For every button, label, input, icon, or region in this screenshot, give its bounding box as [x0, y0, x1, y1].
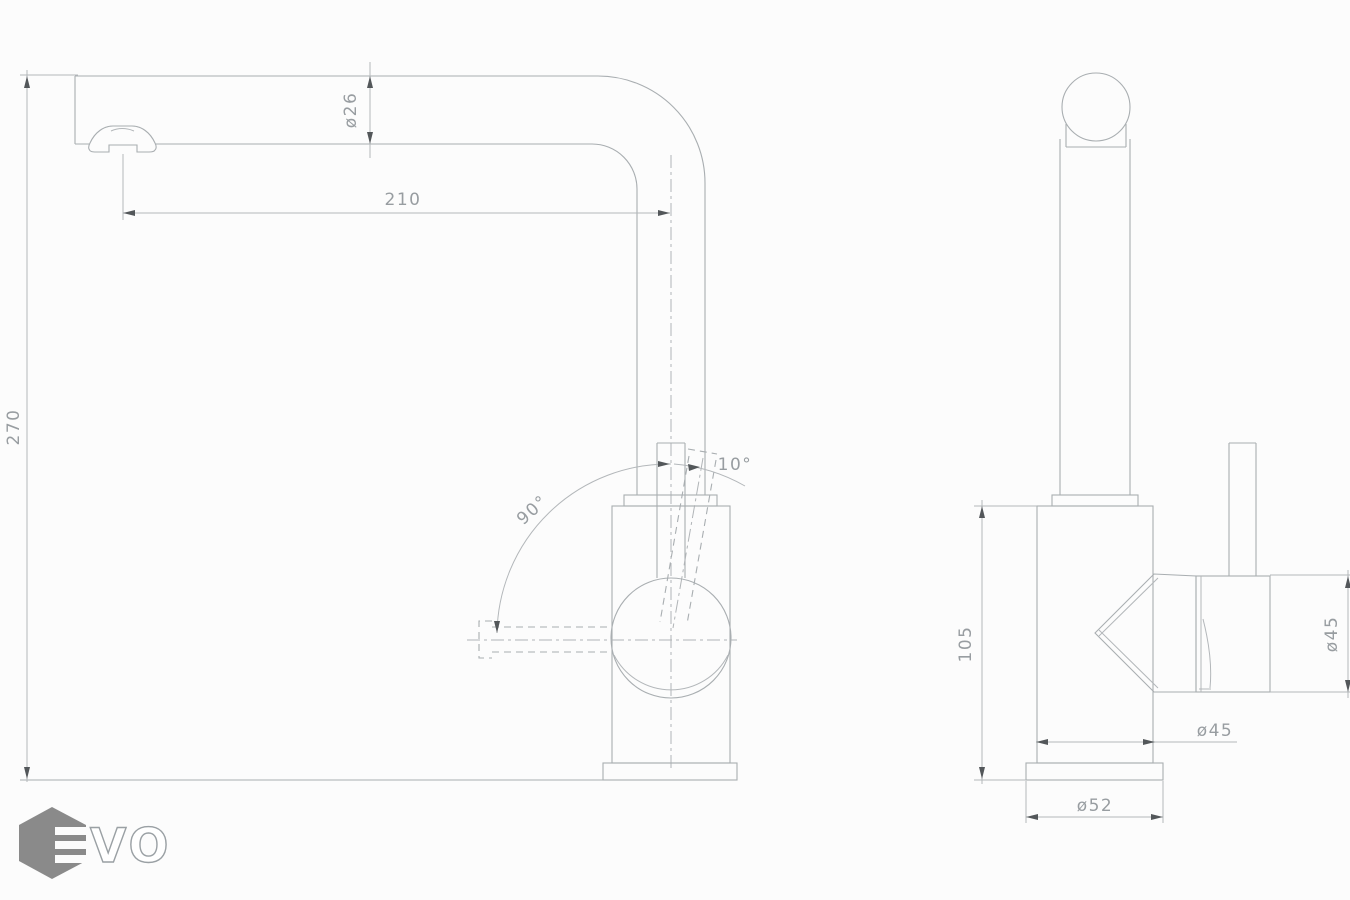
tilted-lever-right-edge	[687, 460, 716, 624]
e-bar	[55, 855, 89, 863]
faucet-technical-drawing: 270 ø26 210 90° 10°	[0, 0, 1350, 900]
arrowhead	[658, 461, 670, 467]
arrowhead	[979, 767, 985, 779]
arrowhead	[123, 210, 135, 216]
dim-spout-reach: 210	[123, 154, 670, 220]
arrowhead	[24, 76, 30, 88]
handle-cone-wedge	[1095, 574, 1196, 692]
dim-label-swivel-angle: 90°	[513, 491, 552, 529]
dim-base-diameter: ø52	[1026, 781, 1163, 823]
dim-handle-tilt: 10°	[674, 455, 752, 486]
aerator-outline	[89, 126, 157, 152]
logo-letters-vo: VO	[90, 819, 172, 874]
dim-label-handle-diameter: ø45	[1322, 616, 1342, 653]
dim-label-overall-height: 270	[4, 409, 24, 446]
evo-logo: VO	[19, 807, 172, 879]
front-view: 105 ø45 ø52 ø45	[956, 73, 1350, 823]
arrowhead	[979, 506, 985, 518]
arrowhead	[1151, 814, 1163, 820]
base-flange-front	[1026, 763, 1163, 780]
column-front	[1060, 139, 1130, 495]
angle-arc	[497, 464, 671, 633]
dim-body-height: 105	[956, 500, 1037, 784]
spout-nose-bracket	[1066, 124, 1126, 147]
dim-overall-height: 270	[4, 70, 78, 782]
handle-housing	[1196, 576, 1270, 692]
arrowhead	[658, 210, 670, 216]
side-view: 270 ø26 210 90° 10°	[4, 62, 752, 782]
arrowhead	[24, 767, 30, 779]
tilted-lever-centerline	[673, 458, 703, 628]
e-bar	[55, 827, 89, 835]
base-flange-side	[603, 763, 737, 780]
logo-letter-e-bars	[55, 827, 89, 863]
dim-swivel-angle: 90°	[494, 461, 671, 633]
collar-front	[1052, 495, 1138, 506]
arrowhead	[1026, 814, 1038, 820]
tilted-lever-top	[688, 449, 717, 454]
spout-inner-bend	[592, 144, 637, 495]
dim-body-diameter: ø45	[1036, 721, 1237, 745]
arrowhead	[688, 464, 700, 471]
body-front	[1037, 506, 1153, 763]
handle-lever-front	[1229, 443, 1256, 576]
drawing-sheet: 270 ø26 210 90° 10°	[0, 0, 1350, 900]
dim-handle-diameter: ø45	[1270, 570, 1350, 698]
spout-nose-circle	[1062, 73, 1130, 141]
arrowhead	[1036, 739, 1048, 745]
dim-label-base-diameter: ø52	[1077, 796, 1114, 816]
dim-label-body-height: 105	[956, 626, 976, 663]
spout-outer-bend	[598, 76, 705, 495]
cone-lower-inner-line	[1099, 630, 1158, 688]
dim-label-handle-tilt: 10°	[718, 455, 753, 475]
arrowhead	[367, 132, 373, 144]
cone-upper-inner-line	[1099, 578, 1158, 636]
aerator-dome-line	[111, 129, 134, 132]
arrowhead	[367, 76, 373, 88]
dim-label-body-diameter: ø45	[1197, 721, 1234, 741]
e-bar	[55, 841, 89, 849]
dim-label-spout-diameter: ø26	[341, 92, 361, 129]
dim-label-spout-reach: 210	[385, 190, 422, 210]
